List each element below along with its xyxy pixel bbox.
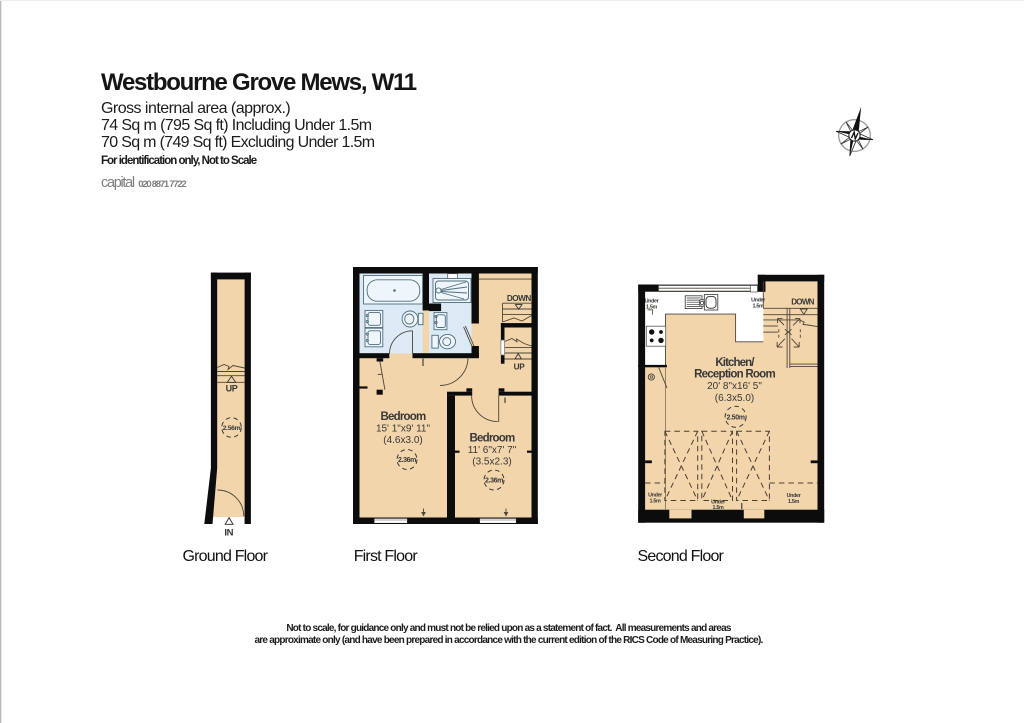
svg-text:2.36m: 2.36m <box>485 478 503 485</box>
svg-text:DOWN: DOWN <box>507 294 532 303</box>
svg-text:Bedroom: Bedroom <box>381 411 426 423</box>
svg-text:Reception Room: Reception Room <box>694 369 775 381</box>
svg-text:2.56m: 2.56m <box>223 425 241 432</box>
svg-text:Bedroom: Bedroom <box>470 433 515 445</box>
svg-text:DOWN: DOWN <box>791 298 814 307</box>
svg-text:11' 6"x7' 7": 11' 6"x7' 7" <box>468 445 517 456</box>
svg-text:1.5m: 1.5m <box>753 304 764 310</box>
svg-text:15' 1"x9' 11": 15' 1"x9' 11" <box>376 423 431 434</box>
svg-text:20' 8"x16' 5": 20' 8"x16' 5" <box>707 381 762 392</box>
svg-text:1.5m: 1.5m <box>650 499 661 505</box>
svg-text:2.36m: 2.36m <box>398 457 416 464</box>
svg-text:(3.5x2.3): (3.5x2.3) <box>472 457 511 468</box>
svg-text:UP: UP <box>514 362 526 371</box>
svg-text:(4.6x3.0): (4.6x3.0) <box>383 435 422 446</box>
svg-text:2.50m: 2.50m <box>727 414 745 421</box>
svg-text:1.5m: 1.5m <box>713 505 724 511</box>
svg-text:Kitchen/: Kitchen/ <box>715 357 755 369</box>
svg-text:IN: IN <box>224 528 233 539</box>
svg-text:1.5m: 1.5m <box>788 499 799 505</box>
svg-text:(6.3x5.0): (6.3x5.0) <box>715 393 754 404</box>
svg-text:UP: UP <box>226 384 238 394</box>
